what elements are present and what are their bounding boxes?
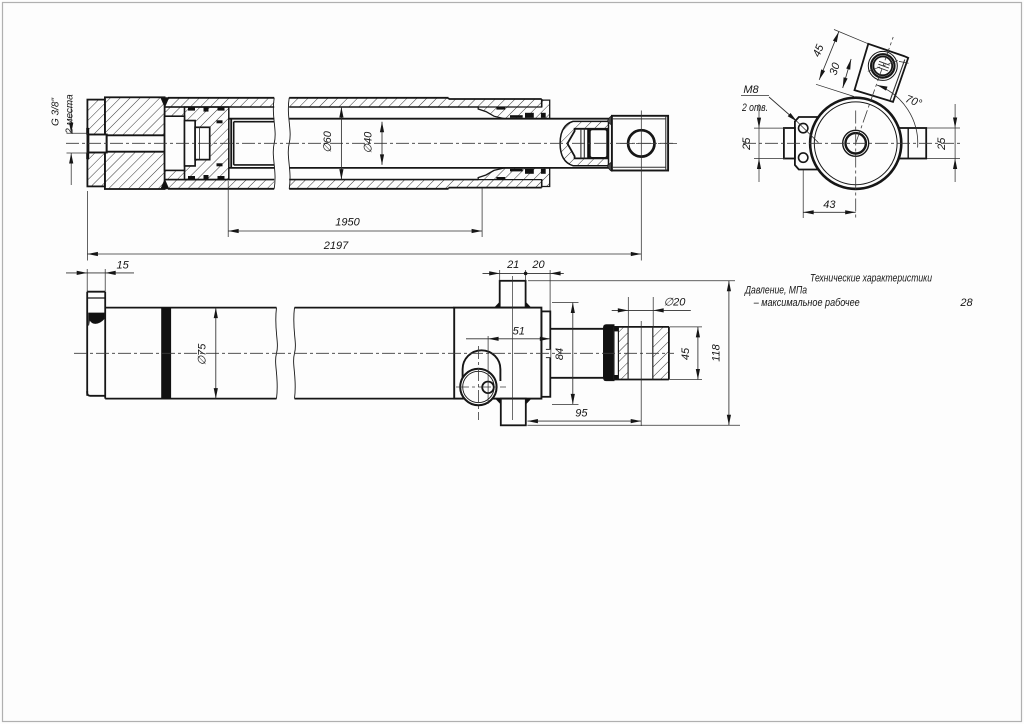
svg-text:М8: М8: [743, 84, 759, 96]
svg-text:G 3/8": G 3/8": [51, 98, 62, 126]
svg-text:Технические характеристики: Технические характеристики: [810, 273, 932, 285]
svg-text:43: 43: [823, 199, 836, 211]
svg-text:1950: 1950: [335, 217, 360, 229]
svg-text:∅60: ∅60: [322, 130, 334, 153]
svg-text:Давление, МПа: Давление, МПа: [743, 285, 807, 297]
svg-text:25: 25: [741, 137, 753, 151]
svg-text:∅75: ∅75: [197, 343, 209, 366]
svg-text:51: 51: [513, 325, 525, 337]
svg-text:28: 28: [959, 297, 973, 309]
svg-text:25: 25: [936, 137, 948, 151]
svg-text:45: 45: [680, 347, 692, 360]
svg-text:20: 20: [531, 259, 545, 271]
svg-text:– максимальное рабочее: – максимальное рабочее: [753, 297, 860, 309]
svg-text:2 отв.: 2 отв.: [741, 102, 768, 114]
svg-text:95: 95: [575, 408, 588, 420]
svg-text:∅20: ∅20: [664, 296, 687, 308]
svg-text:∅40: ∅40: [362, 131, 374, 154]
svg-text:21: 21: [506, 259, 519, 271]
svg-text:84: 84: [554, 348, 566, 360]
svg-text:2 места: 2 места: [65, 94, 76, 135]
svg-text:2197: 2197: [323, 240, 349, 252]
svg-text:15: 15: [116, 260, 129, 272]
svg-text:118: 118: [710, 343, 722, 361]
